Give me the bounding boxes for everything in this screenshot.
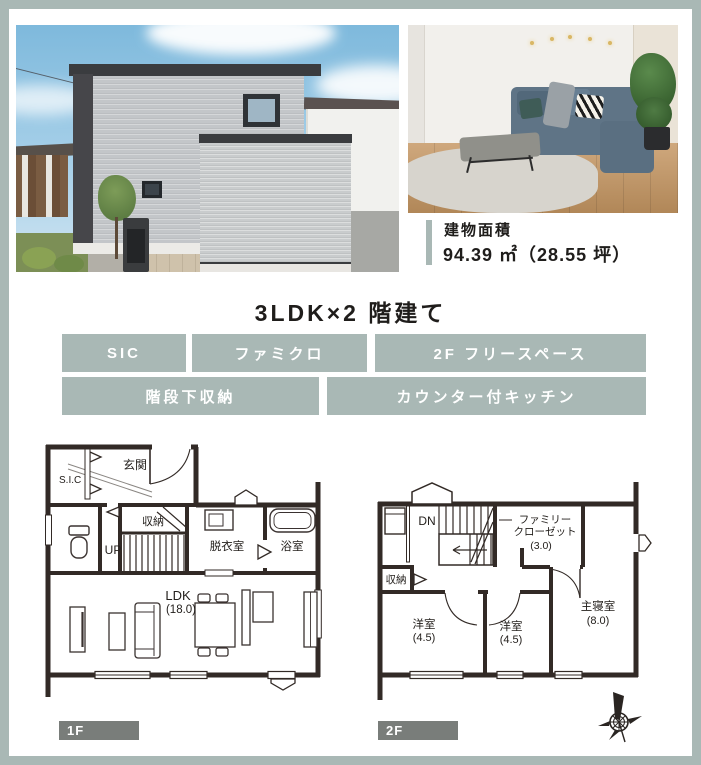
room-label-family-closet-2: クローゼット xyxy=(514,526,577,538)
room-label-dn: DN xyxy=(418,514,435,528)
coffee-table-symbol xyxy=(109,613,125,650)
kitchen-counter-symbol xyxy=(242,590,250,645)
pillow-pattern xyxy=(575,94,604,120)
toilet-tank xyxy=(69,526,89,535)
compass-north-needle xyxy=(613,692,624,720)
feature-tag-sic: SIC xyxy=(62,334,186,372)
area-accent-bar xyxy=(426,220,432,265)
room-label-master: 主寝室 xyxy=(581,599,616,613)
room-label-yoshitsu-1: 洋室 xyxy=(413,617,436,631)
building-area-label: 建物面積 xyxy=(444,219,512,240)
room-label-yoshitsu-2-size: (4.5) xyxy=(500,634,523,646)
garden-bush xyxy=(22,247,56,269)
closet-door-arrow-icon xyxy=(414,574,426,585)
front-volume-wall xyxy=(200,143,351,263)
plant-pot xyxy=(644,127,670,150)
plan-1f-genkan-details xyxy=(68,449,152,499)
main-house-roof xyxy=(69,64,321,76)
exterior-photo xyxy=(16,25,399,272)
floor-badge-1f: 1F xyxy=(59,721,139,740)
plan-2f-stairs xyxy=(439,506,493,565)
front-volume-roof xyxy=(199,134,352,143)
chair-symbol xyxy=(216,648,228,656)
plan-1f-furniture xyxy=(70,590,317,658)
mailbox-slot xyxy=(127,229,145,263)
feature-tag-stair-storage: 階段下収納 xyxy=(62,377,319,415)
house-plant-lower xyxy=(636,97,672,131)
room-label-datsui: 脱衣室 xyxy=(210,539,245,553)
vent-pentagon-icon xyxy=(235,490,257,505)
feature-tag-freespace: 2F フリースペース xyxy=(375,334,646,372)
room-label-master-size: (8.0) xyxy=(587,615,610,627)
toilet-bowl xyxy=(71,537,87,558)
garden-tree-trunk xyxy=(115,217,118,259)
chair-symbol xyxy=(216,594,228,602)
compass-icon xyxy=(597,690,643,746)
front-volume-foundation xyxy=(200,262,351,272)
room-label-ldk-size: (18.0) xyxy=(166,604,196,616)
chair-symbol xyxy=(198,648,210,656)
cabinet-symbol xyxy=(385,508,405,534)
room-label-family-closet-1: ファミリー xyxy=(519,514,572,526)
feature-tag-counter-kitchen: カウンター付キッチン xyxy=(327,377,646,415)
ceiling-downlight xyxy=(608,41,612,45)
vent-pentagon-icon xyxy=(412,483,452,504)
room-label-shuno: 収納 xyxy=(142,515,164,528)
sliding-door-symbol xyxy=(407,506,410,562)
gravel-right xyxy=(344,211,399,272)
ceiling-downlight xyxy=(530,41,534,45)
bg-house-left xyxy=(16,155,68,217)
feature-tag-famiclo: ファミクロ xyxy=(192,334,367,372)
building-area-value: 94.39 ㎡（28.55 坪） xyxy=(443,241,631,267)
pillow-teal xyxy=(519,98,543,120)
ceiling-downlight xyxy=(550,37,554,41)
room-label-ldk: LDK xyxy=(165,588,191,603)
room-label-sic: S.I.C xyxy=(59,475,81,486)
garden-tree xyxy=(98,175,136,221)
sofa-symbol xyxy=(135,603,160,658)
balcony-door-arrow-icon xyxy=(639,535,651,551)
room-label-family-closet-size: (3.0) xyxy=(530,540,552,552)
page-title: 3LDK×2 階建て xyxy=(0,294,701,328)
ceiling-downlight xyxy=(588,37,592,41)
interior-photo xyxy=(408,25,678,213)
ceiling-downlight xyxy=(568,35,572,39)
kitchen-island-symbol xyxy=(253,592,273,622)
room-label-shuno-2f: 収納 xyxy=(386,573,407,586)
room-label-yoshitsu-2: 洋室 xyxy=(500,619,523,633)
dining-table-symbol xyxy=(195,603,235,647)
upper-window xyxy=(243,94,280,127)
floor-badge-2f: 2F xyxy=(378,721,458,740)
terrace-door-arrow-icon xyxy=(271,679,295,690)
room-label-yoshitsu-1-size: (4.5) xyxy=(413,632,436,644)
floorplan-1f: 玄関 S.I.C 収納 UP 脱衣室 浴室 LDK (18.0) xyxy=(45,440,330,712)
room-label-bath: 浴室 xyxy=(281,539,304,553)
property-flyer-page: 建物面積 94.39 ㎡（28.55 坪） 3LDK×2 階建て SIC ファミ… xyxy=(0,0,701,765)
garden-bush xyxy=(54,255,84,272)
floorplan-2f: DN ファミリー クローゼット (3.0) 収納 洋室 (4.5) 洋室 (4.… xyxy=(375,480,655,710)
chair-symbol xyxy=(198,594,210,602)
lower-window xyxy=(142,181,162,198)
room-label-genkan: 玄関 xyxy=(123,457,147,472)
room-label-up: UP xyxy=(105,543,122,557)
main-house-corner-shadow xyxy=(73,74,93,247)
